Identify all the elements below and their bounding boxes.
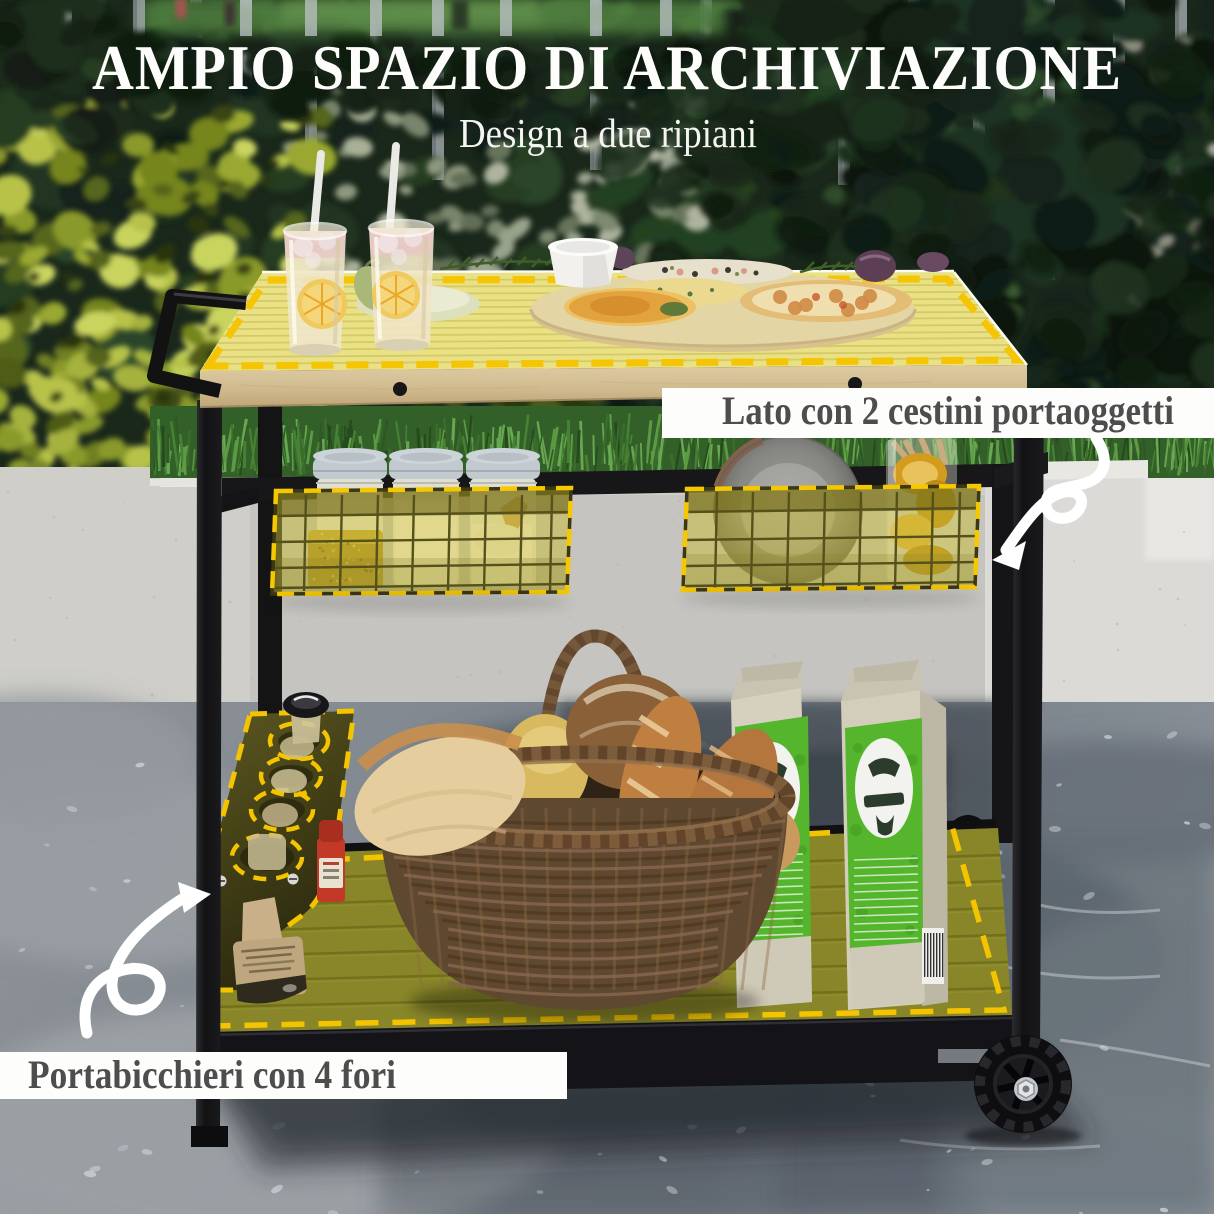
svg-text:Lato con 2 cestini portaoggett: Lato con 2 cestini portaoggetti (722, 388, 1174, 433)
svg-text:AMPIO SPAZIO DI ARCHIVIAZIONE: AMPIO SPAZIO DI ARCHIVIAZIONE (92, 32, 1122, 103)
svg-text:Design a due ripiani: Design a due ripiani (459, 110, 757, 156)
svg-text:Portabicchieri con 4 fori: Portabicchieri con 4 fori (28, 1052, 396, 1097)
